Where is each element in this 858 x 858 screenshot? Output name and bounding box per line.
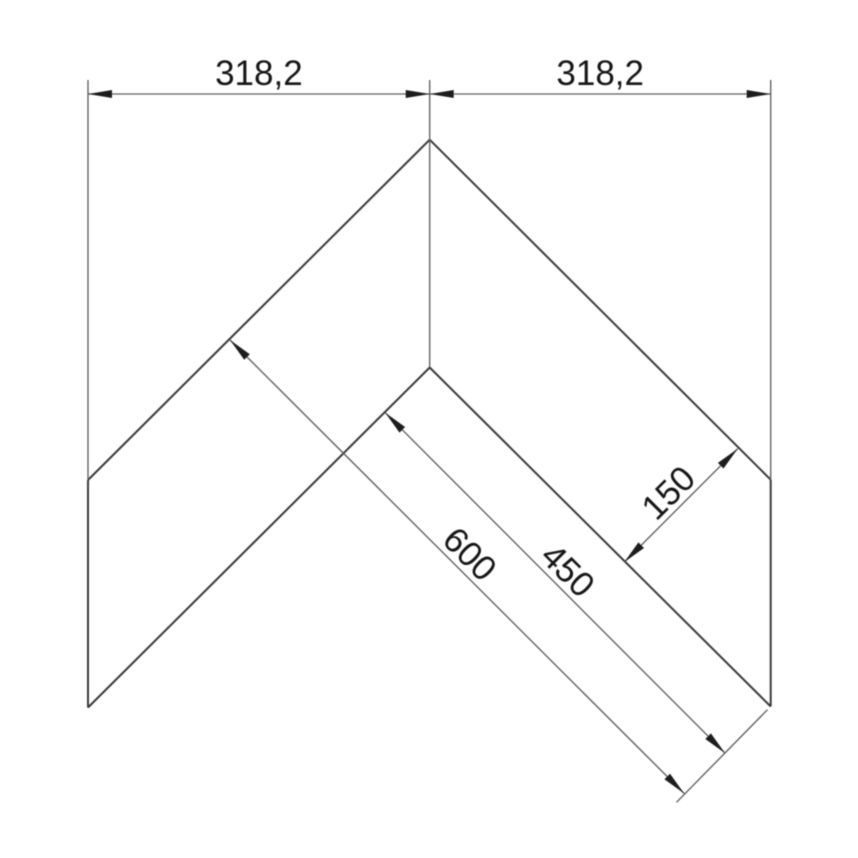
svg-text:318,2: 318,2: [556, 54, 644, 93]
svg-text:318,2: 318,2: [215, 54, 303, 93]
